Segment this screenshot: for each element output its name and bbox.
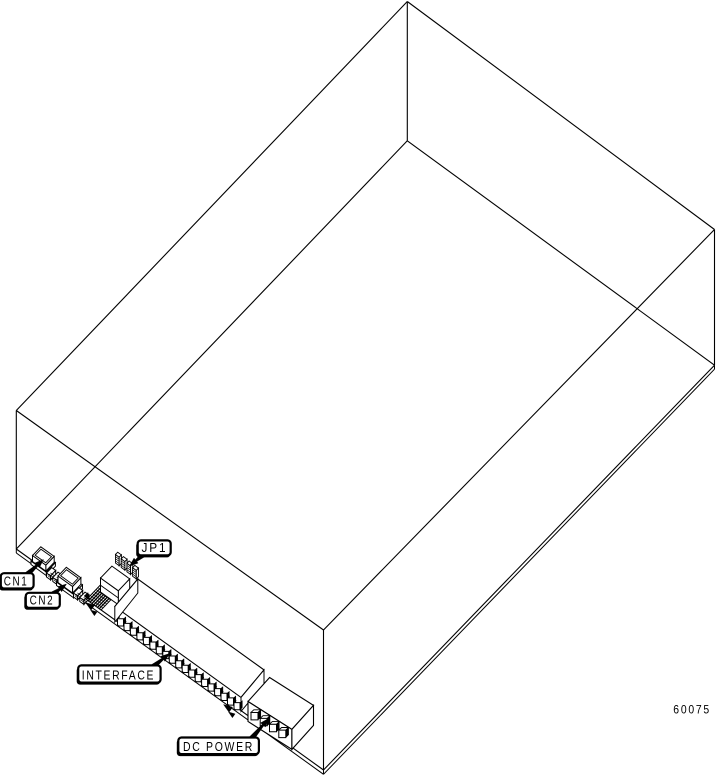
svg-text:DC POWER: DC POWER [183, 740, 254, 754]
svg-text:JP1: JP1 [142, 541, 168, 555]
svg-text:CN2: CN2 [30, 594, 55, 608]
svg-text:INTERFACE: INTERFACE [82, 668, 155, 682]
svg-text:60075: 60075 [673, 703, 711, 717]
svg-text:CN1: CN1 [4, 574, 29, 588]
